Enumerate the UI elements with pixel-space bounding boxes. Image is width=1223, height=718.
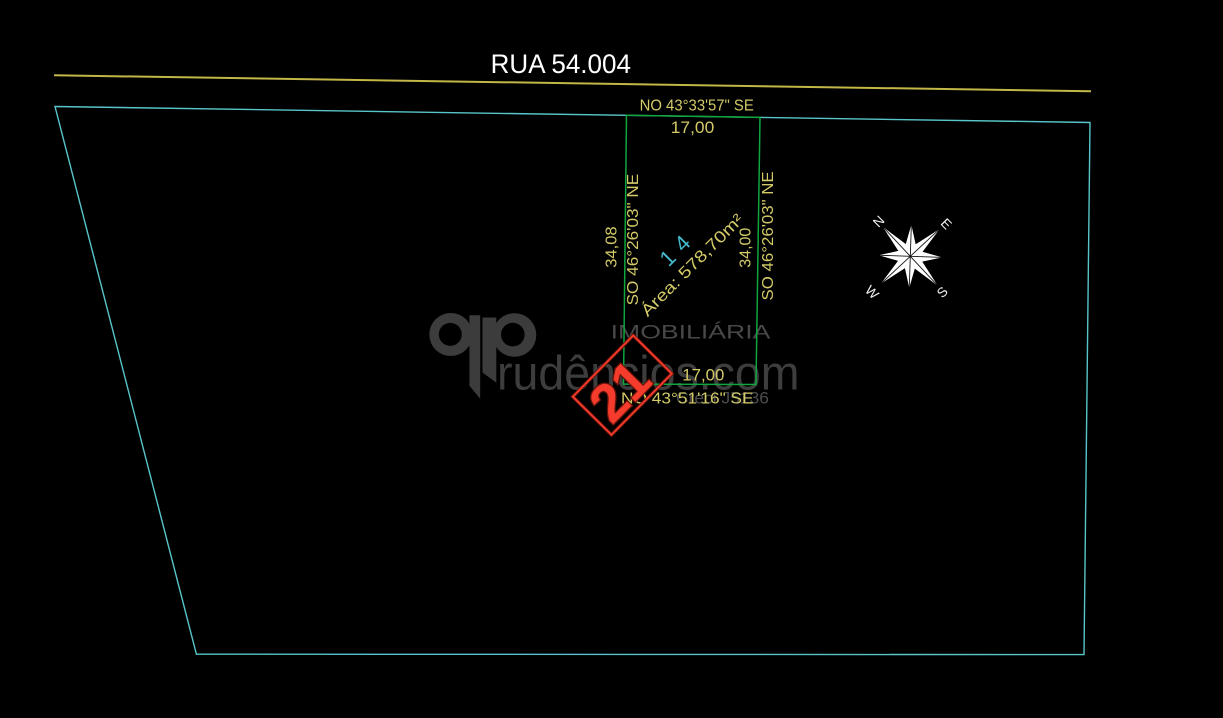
svg-text:34,00: 34,00 <box>738 228 755 268</box>
svg-text:NO 43°33'57" SE: NO 43°33'57" SE <box>640 97 754 114</box>
svg-text:S: S <box>934 284 951 301</box>
svg-text:17,00: 17,00 <box>671 118 715 137</box>
svg-text:IMOBILIÁRIA: IMOBILIÁRIA <box>611 321 771 344</box>
svg-text:SO 46°26'03" NE: SO 46°26'03" NE <box>625 174 642 306</box>
svg-text:17,00: 17,00 <box>682 365 724 384</box>
svg-text:E: E <box>938 215 955 232</box>
svg-text:W: W <box>862 283 882 303</box>
svg-text:N: N <box>870 213 888 231</box>
svg-text:34,08: 34,08 <box>604 226 621 267</box>
svg-text:Área: 578,70m²: Área: 578,70m² <box>637 210 748 321</box>
svg-text:SO 46°26'03" NE: SO 46°26'03" NE <box>760 171 777 300</box>
svg-text:RUA 54.004: RUA 54.004 <box>491 49 631 79</box>
